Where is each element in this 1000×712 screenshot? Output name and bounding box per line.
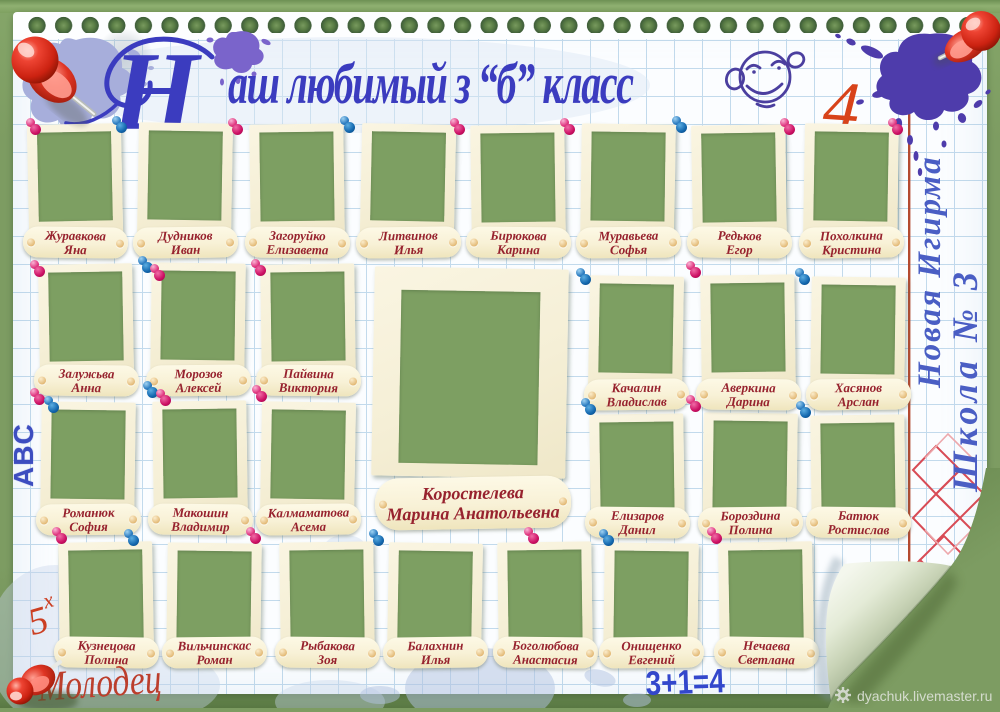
svg-text:dyachuk.livemaster.ru: dyachuk.livemaster.ru [857,688,992,704]
